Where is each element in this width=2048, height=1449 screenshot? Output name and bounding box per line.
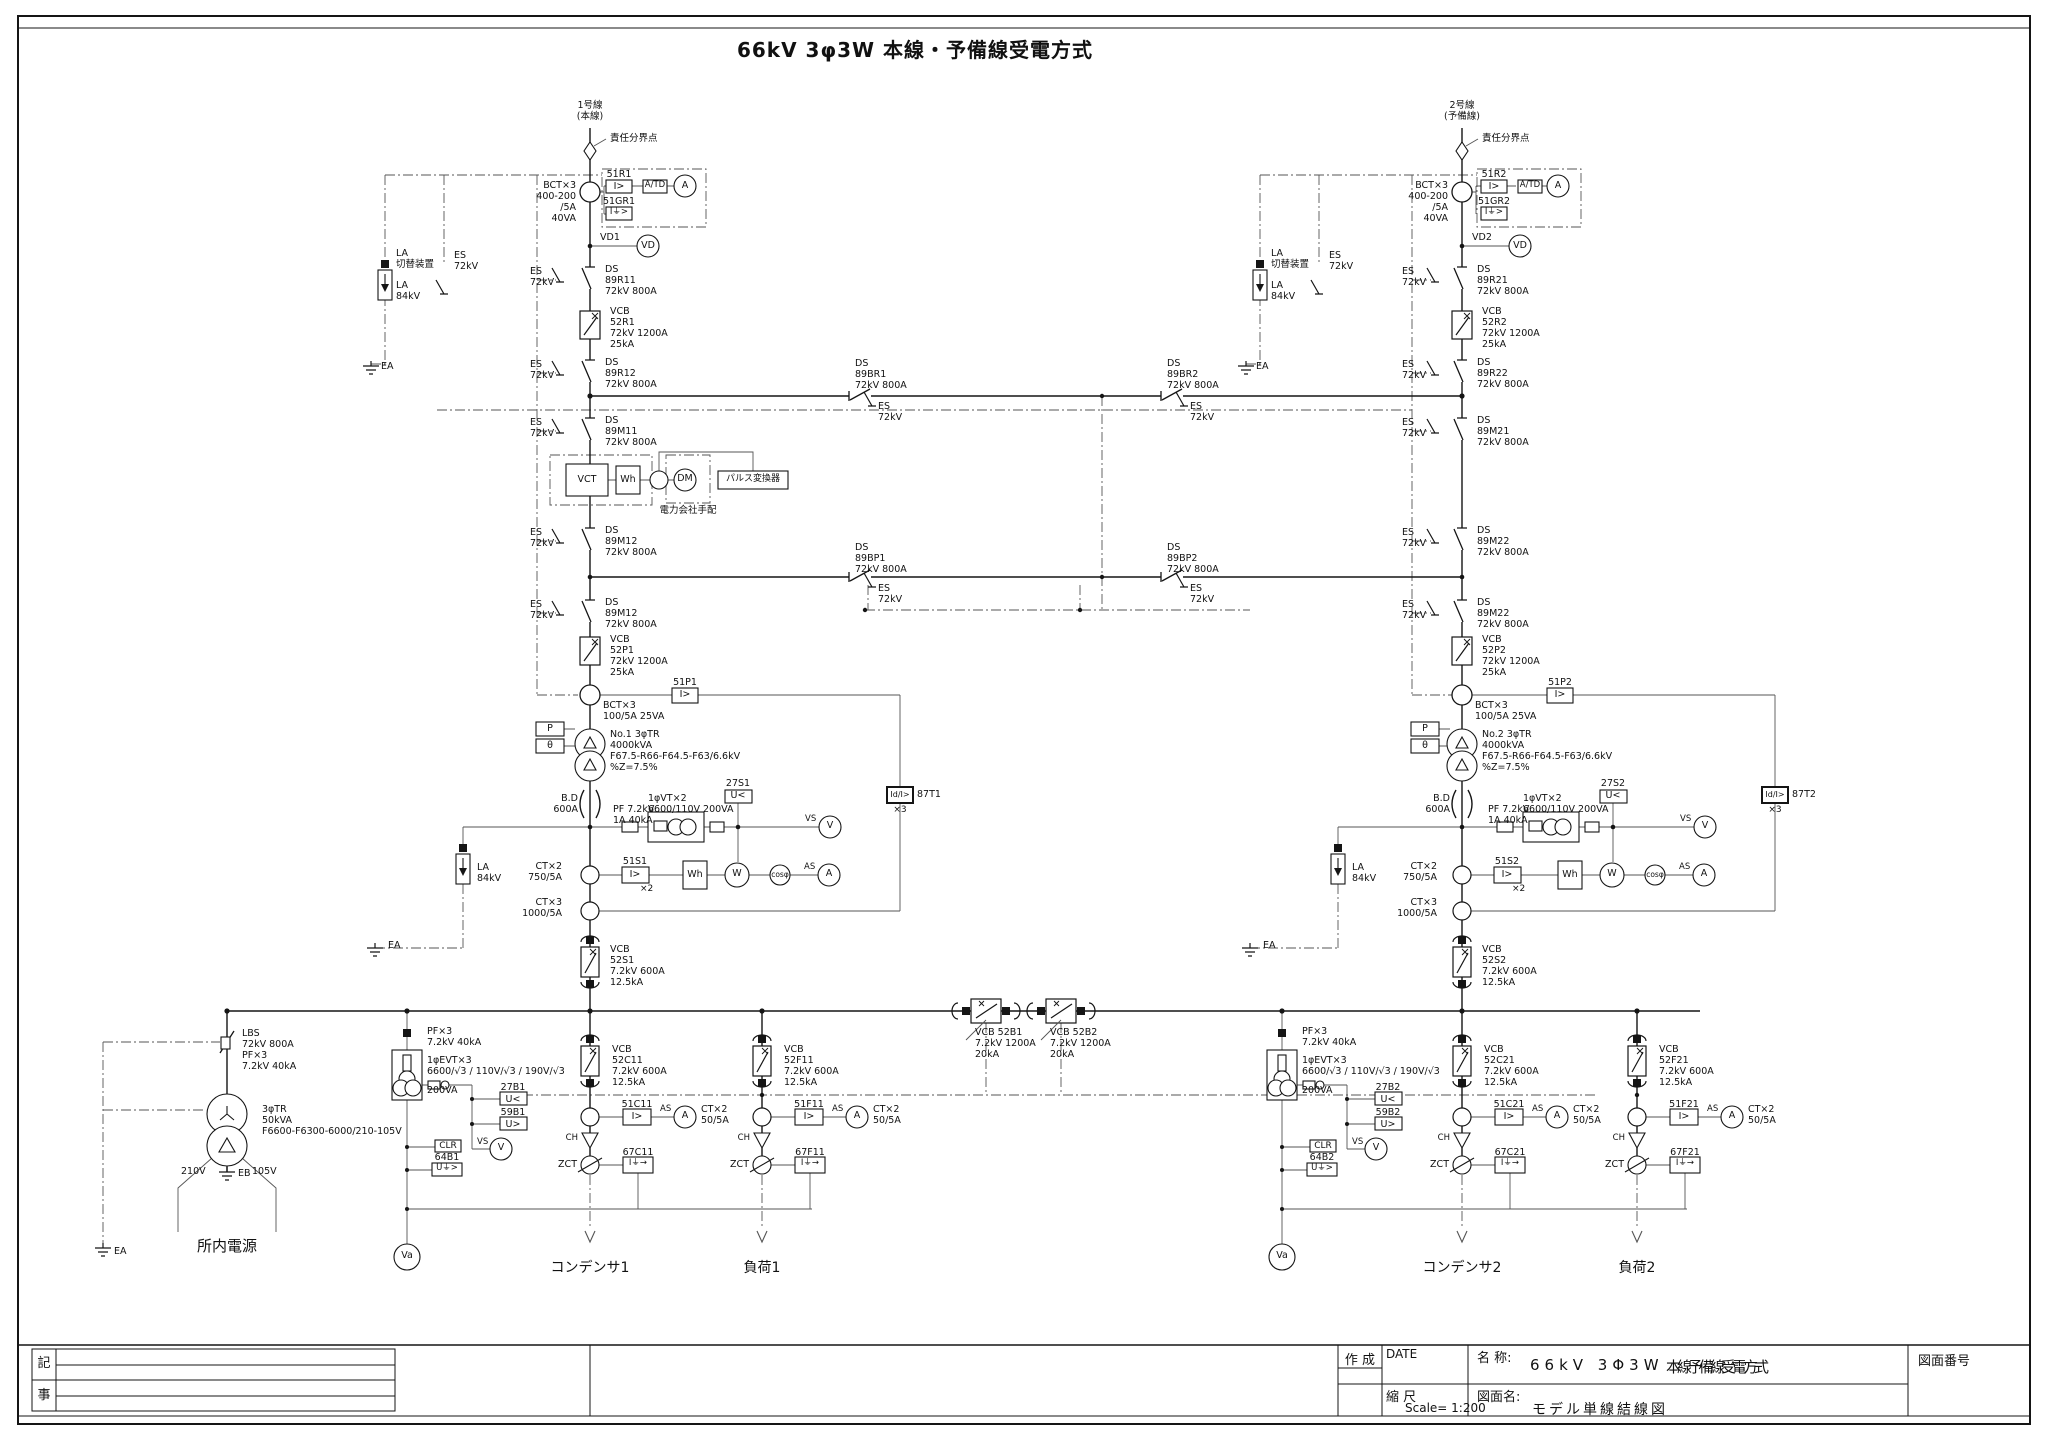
relay-67c21-name: 67C21 — [1495, 1147, 1526, 1158]
relay-87t2-name: 87T2 — [1792, 789, 1816, 800]
la-s2-label: LA 84kV — [1352, 862, 1376, 884]
x3-87t2: ×3 — [1768, 805, 1781, 815]
ds-89m11-label: DS 89M11 72kV 800A — [605, 415, 657, 448]
bct-p2-label: BCT×3 100/5A 25VA — [1475, 700, 1536, 722]
relay-64b1-el: U⏚> — [436, 1164, 458, 1174]
vcb-52c21-label: VCB 52C21 7.2kV 600A 12.5kA — [1484, 1044, 1539, 1088]
relay-51c21-el: I> — [1504, 1111, 1515, 1122]
created-label: 作 成 — [1345, 1349, 1375, 1368]
wh3-label: Wh — [1562, 869, 1577, 880]
page-title: 66kV 3φ3W 本線・予備線受電方式 — [737, 34, 1093, 63]
ds-89r12-label: DS 89R12 72kV 800A — [605, 357, 657, 390]
vt-s1-label: 1φVT×2 6600/110V 200VA — [648, 793, 734, 815]
ea1-label: EA — [381, 361, 394, 372]
as5-label: AS — [1532, 1105, 1543, 1115]
scale-value: Scale= 1:200 — [1405, 1401, 1486, 1415]
la-s1-label: LA 84kV — [477, 862, 501, 884]
bct-r2-label: BCT×3 400-200 /5A 40VA — [1408, 180, 1448, 224]
la-sw1-la: LA 84kV — [396, 280, 420, 302]
relay-67c11-name: 67C11 — [623, 1147, 654, 1158]
es-top1-label: ES 72kV — [454, 250, 478, 272]
relay-51f21-el: I> — [1679, 1111, 1690, 1122]
relay-87t1-name: 87T1 — [917, 789, 941, 800]
es-89bp2: ES 72kV — [1190, 583, 1214, 605]
relay-87t2-el: Id/I> — [1765, 790, 1784, 799]
meter-vd2: VD — [1513, 240, 1527, 251]
bct-r1-label: BCT×3 400-200 /5A 40VA — [536, 180, 576, 224]
ds-89m12b-label: DS 89M12 72kV 800A — [605, 597, 657, 630]
v210-label: 210V — [181, 1166, 206, 1177]
single-line-diagram-canvas — [0, 0, 2048, 1449]
meter-cos1: cosφ — [771, 871, 789, 880]
relay-51c11-name: 51C11 — [622, 1099, 653, 1110]
name-label: 名 称: — [1477, 1347, 1512, 1366]
dm-label: DM — [677, 473, 693, 484]
drawing-sheet: 66kV 3φ3W 本線・予備線受電方式 — [0, 0, 2048, 1449]
relay-51c21-name: 51C21 — [1494, 1099, 1525, 1110]
relay-51s2-name: 51S2 — [1495, 856, 1519, 867]
vs3-label: VS — [477, 1138, 488, 1148]
line1-name: 1号線 (本線) — [577, 100, 603, 122]
vt-s2-label: 1φVT×2 6600/110V 200VA — [1523, 793, 1609, 815]
eb-label: EB — [238, 1168, 251, 1179]
ch4-label: CH — [1613, 1134, 1625, 1144]
relay-67f11-name: 67F11 — [795, 1147, 825, 1158]
meter-v4: V — [1373, 1142, 1380, 1153]
relay-51p2-el: I> — [1555, 689, 1566, 700]
relay-51p1-name: 51P1 — [673, 677, 697, 688]
theta-box1: θ — [547, 740, 553, 751]
relay-51f11-el: I> — [804, 1111, 815, 1122]
as4-label: AS — [832, 1105, 843, 1115]
as6-label: AS — [1707, 1105, 1718, 1115]
meter-a-s1: A — [826, 868, 833, 879]
vcb-52c11-label: VCB 52C11 7.2kV 600A 12.5kA — [612, 1044, 667, 1088]
ds-89m21-label: DS 89M21 72kV 800A — [1477, 415, 1529, 448]
pulse-label: パルス変換器 — [726, 474, 780, 484]
boundary2-label: 責任分界点 — [1482, 133, 1530, 144]
as3-label: AS — [660, 1105, 671, 1115]
meter-a-r2: A — [1555, 180, 1562, 191]
name-value-system: 本線予備線受電方式 — [1666, 1356, 1765, 1377]
tr1-label: No.1 3φTR 4000kVA F67.5-R66-F64.5-F63/6.… — [610, 729, 740, 773]
drawing-name-value: モデル単線結線図 — [1532, 1399, 1668, 1419]
evt2-label: 1φEVT×3 6600/√3 / 110V/√3 / 190V/√3 — [1302, 1055, 1440, 1077]
es-89m22b: ES 72kV — [1402, 599, 1426, 621]
shonai-label: 所内電源 — [197, 1238, 257, 1255]
ea3-label: EA — [388, 940, 401, 951]
relay-27b2-el: U< — [1381, 1094, 1396, 1105]
sheet-frame — [18, 16, 2030, 1424]
es-89m12a: ES 72kV — [530, 527, 554, 549]
relay-51gr1-el: I⏚> — [610, 208, 628, 218]
relay-64b2-name: 64B2 — [1310, 1152, 1335, 1163]
relay-64b2-el: U⏚> — [1311, 1164, 1333, 1174]
relay-51gr1-name: 51GR1 — [603, 196, 635, 207]
meter-v2: V — [1702, 820, 1709, 831]
meter-a-s2: A — [1701, 868, 1708, 879]
relay-67c11-el: I⏚→ — [629, 1159, 647, 1169]
ds-89r22-label: DS 89R22 72kV 800A — [1477, 357, 1529, 390]
load1-label: 負荷1 — [744, 1260, 781, 1276]
ds-89m12a-label: DS 89M12 72kV 800A — [605, 525, 657, 558]
vcb-52p2-label: VCB 52P2 72kV 1200A 25kA — [1482, 634, 1540, 678]
notes-row-label-ki: 記 — [37, 1352, 50, 1371]
relay-67f11-el: I⏚→ — [801, 1159, 819, 1169]
ct50-1-label: CT×2 50/5A — [701, 1104, 729, 1126]
vcb-52b2-label: VCB 52B2 7.2kV 1200A 20kA — [1050, 1027, 1111, 1060]
control-wiring — [103, 169, 1595, 1248]
ct50-4-label: CT×2 50/5A — [1748, 1104, 1776, 1126]
vd1-label: VD1 — [600, 232, 620, 243]
vcb-52r1-label: VCB 52R1 72kV 1200A 25kA — [610, 306, 668, 350]
v105-label: 105V — [252, 1166, 277, 1177]
relay-59b2-name: 59B2 — [1376, 1107, 1401, 1118]
denryoku-label: 電力会社手配 — [659, 505, 716, 516]
es-top2-label: ES 72kV — [1329, 250, 1353, 272]
meter-a-f21: A — [1729, 1110, 1736, 1121]
meter-w1: W — [732, 868, 741, 879]
cond2-label: コンデンサ2 — [1423, 1260, 1502, 1276]
as2-label: AS — [1679, 863, 1690, 873]
ds-89br2-label: DS 89BR2 72kV 800A — [1167, 358, 1219, 391]
p-box1: P — [547, 723, 553, 734]
wh2-label: Wh — [687, 869, 702, 880]
la-sw2-label: LA 切替装置 — [1271, 248, 1309, 270]
ch2-label: CH — [738, 1134, 750, 1144]
date-label: DATE — [1386, 1347, 1417, 1361]
relay-27s2-name: 27S2 — [1601, 778, 1625, 789]
es-89r11: ES 72kV — [530, 266, 554, 288]
relay-27s1-name: 27S1 — [726, 778, 750, 789]
meter-va1: Va — [401, 1250, 413, 1261]
vcb-52p1-label: VCB 52P1 72kV 1200A 25kA — [610, 634, 668, 678]
vd2-label: VD2 — [1472, 232, 1492, 243]
zct4-label: ZCT — [1605, 1159, 1624, 1170]
la-sw2-la: LA 84kV — [1271, 280, 1295, 302]
meter-vd1: VD — [641, 240, 655, 251]
es-89m22a: ES 72kV — [1402, 527, 1426, 549]
relay-67c21-el: I⏚→ — [1501, 1159, 1519, 1169]
tr2-label: No.2 3φTR 4000kVA F67.5-R66-F64.5-F63/6.… — [1482, 729, 1612, 773]
p-box2: P — [1422, 723, 1428, 734]
relay-27s2-el: U< — [1606, 790, 1621, 801]
relay-51p2-name: 51P2 — [1548, 677, 1572, 688]
theta-box2: θ — [1422, 740, 1428, 751]
ds-89r21-label: DS 89R21 72kV 800A — [1477, 264, 1529, 297]
meter-va2: Va — [1276, 1250, 1288, 1261]
meter-a-f11: A — [854, 1110, 861, 1121]
x2-51s1: ×2 — [640, 884, 653, 894]
es-89m12b: ES 72kV — [530, 599, 554, 621]
es-89br2: ES 72kV — [1190, 401, 1214, 423]
relay-64b1-name: 64B1 — [435, 1152, 460, 1163]
relay-51gr2-name: 51GR2 — [1478, 196, 1510, 207]
ct1000-2-label: CT×3 1000/5A — [1397, 897, 1437, 919]
pfx3-1-label: PF×3 7.2kV 40kA — [427, 1026, 481, 1048]
relay-51gr2-el: I⏚> — [1485, 208, 1503, 218]
boundary1-label: 責任分界点 — [610, 133, 658, 144]
zct2-label: ZCT — [730, 1159, 749, 1170]
meter-a-c21: A — [1554, 1110, 1561, 1121]
relay-51c11-el: I> — [632, 1111, 643, 1122]
es-89br1: ES 72kV — [878, 401, 902, 423]
relay-51r1-name: 51R1 — [607, 169, 632, 180]
bd2-label: B.D 600A — [1425, 793, 1450, 815]
vcb-52s1-label: VCB 52S1 7.2kV 600A 12.5kA — [610, 944, 665, 988]
vcb-52b1-label: VCB 52B1 7.2kV 1200A 20kA — [975, 1027, 1036, 1060]
es-89r12: ES 72kV — [530, 359, 554, 381]
vcb-52f11-label: VCB 52F11 7.2kV 600A 12.5kA — [784, 1044, 839, 1088]
va200-1-label: 200VA — [427, 1085, 458, 1096]
ea5-label: EA — [114, 1246, 127, 1257]
relay-59b1-name: 59B1 — [501, 1107, 526, 1118]
es-89r21: ES 72kV — [1402, 266, 1426, 288]
relay-51p1-el: I> — [680, 689, 691, 700]
relay-51r1-el: I> — [614, 181, 625, 192]
relay-51s1-el: I> — [630, 869, 641, 880]
relay-51s1-name: 51S1 — [623, 856, 647, 867]
relay-87t1-el: Id/I> — [890, 790, 909, 799]
drawing-no-label: 図面番号 — [1918, 1350, 1970, 1369]
as1-label: AS — [804, 863, 815, 873]
ds-89br1-label: DS 89BR1 72kV 800A — [855, 358, 907, 391]
ct50-2-label: CT×2 50/5A — [873, 1104, 901, 1126]
es-89m11: ES 72kV — [530, 417, 554, 439]
relay-51f21-name: 51F21 — [1669, 1099, 1699, 1110]
drawing-name-label: 図面名: — [1477, 1386, 1520, 1405]
la-sw1-label: LA 切替装置 — [396, 248, 434, 270]
relay-59b1-el: U> — [506, 1119, 521, 1130]
relay-27b1-el: U< — [506, 1094, 521, 1105]
relay-atd2: A/TD — [1520, 181, 1540, 191]
name-value-kv: 66kV 3Φ3W — [1530, 1356, 1664, 1374]
vs1-label: VS — [805, 815, 816, 825]
meter-v1: V — [827, 820, 834, 831]
vcb-52f21-label: VCB 52F21 7.2kV 600A 12.5kA — [1659, 1044, 1714, 1088]
es-89r22: ES 72kV — [1402, 359, 1426, 381]
line2-name: 2号線 (予備線) — [1444, 100, 1480, 122]
x2-51s2: ×2 — [1512, 884, 1525, 894]
vs2-label: VS — [1680, 815, 1691, 825]
relay-59b2-el: U> — [1381, 1119, 1396, 1130]
vs4-label: VS — [1352, 1138, 1363, 1148]
lbs-label: LBS 72kV 800A PF×3 7.2kV 40kA — [242, 1028, 296, 1072]
ct50-3-label: CT×2 50/5A — [1573, 1104, 1601, 1126]
wh1-label: Wh — [620, 474, 635, 485]
meter-v3: V — [498, 1142, 505, 1153]
es-89m21: ES 72kV — [1402, 417, 1426, 439]
ds-89bp1-label: DS 89BP1 72kV 800A — [855, 542, 907, 575]
relay-67f21-name: 67F21 — [1670, 1147, 1700, 1158]
clr1-label: CLR — [439, 1141, 457, 1151]
relay-27s1-el: U< — [731, 790, 746, 801]
ea4-label: EA — [1263, 940, 1276, 951]
evt1-label: 1φEVT×3 6600/√3 / 110V/√3 / 190V/√3 — [427, 1055, 565, 1077]
ct750-1-label: CT×2 750/5A — [528, 861, 562, 883]
bd1-label: B.D 600A — [553, 793, 578, 815]
ch3-label: CH — [1438, 1134, 1450, 1144]
ct750-2-label: CT×2 750/5A — [1403, 861, 1437, 883]
meter-a-r1: A — [682, 180, 689, 191]
clr2-label: CLR — [1314, 1141, 1332, 1151]
tr3-label: 3φTR 50kVA F6600-F6300-6000/210-105V — [262, 1104, 402, 1137]
pfx3-2-label: PF×3 7.2kV 40kA — [1302, 1026, 1356, 1048]
relay-27b2-name: 27B2 — [1376, 1082, 1401, 1093]
load2-label: 負荷2 — [1619, 1260, 1656, 1276]
x3-87t1: ×3 — [893, 805, 906, 815]
cond1-label: コンデンサ1 — [551, 1260, 630, 1276]
meter-w2: W — [1607, 868, 1616, 879]
ea2-label: EA — [1256, 361, 1269, 372]
relay-51r2-el: I> — [1489, 181, 1500, 192]
ds-89m22a-label: DS 89M22 72kV 800A — [1477, 525, 1529, 558]
notes-row-label-ji: 事 — [37, 1384, 50, 1403]
meter-a-c11: A — [682, 1110, 689, 1121]
vcb-52r2-label: VCB 52R2 72kV 1200A 25kA — [1482, 306, 1540, 350]
es-89bp1: ES 72kV — [878, 583, 902, 605]
relay-51f11-name: 51F11 — [794, 1099, 824, 1110]
relay-67f21-el: I⏚→ — [1676, 1159, 1694, 1169]
ct1000-1-label: CT×3 1000/5A — [522, 897, 562, 919]
relay-27b1-name: 27B1 — [501, 1082, 526, 1093]
vcb-52s2-label: VCB 52S2 7.2kV 600A 12.5kA — [1482, 944, 1537, 988]
ch1-label: CH — [566, 1134, 578, 1144]
zct1-label: ZCT — [558, 1159, 577, 1170]
meter-cos2: cosφ — [1646, 871, 1664, 880]
ds-89r11-label: DS 89R11 72kV 800A — [605, 264, 657, 297]
ds-89m22b-label: DS 89M22 72kV 800A — [1477, 597, 1529, 630]
zct3-label: ZCT — [1430, 1159, 1449, 1170]
bct-p1-label: BCT×3 100/5A 25VA — [603, 700, 664, 722]
relay-51s2-el: I> — [1502, 869, 1513, 880]
relay-51r2-name: 51R2 — [1482, 169, 1507, 180]
relay-atd1: A/TD — [645, 181, 665, 191]
va200-2-label: 200VA — [1302, 1085, 1333, 1096]
ds-89bp2-label: DS 89BP2 72kV 800A — [1167, 542, 1219, 575]
vct-label: VCT — [578, 474, 597, 485]
